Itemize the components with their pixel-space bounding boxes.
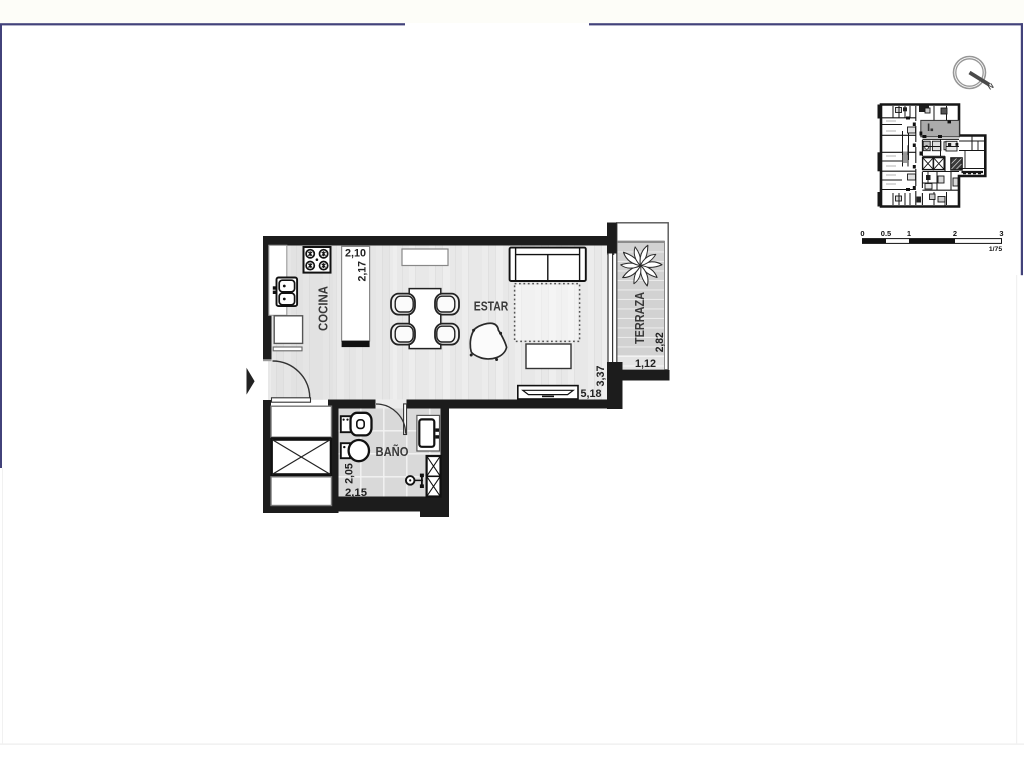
svg-text:BAÑO: BAÑO bbox=[376, 444, 409, 459]
svg-text:1,12: 1,12 bbox=[635, 358, 656, 370]
svg-text:1/75: 1/75 bbox=[989, 246, 1002, 253]
svg-text:2,17: 2,17 bbox=[356, 261, 368, 282]
svg-text:2,15: 2,15 bbox=[345, 487, 367, 499]
svg-text:3: 3 bbox=[999, 229, 1003, 238]
svg-text:5,18: 5,18 bbox=[581, 388, 602, 400]
svg-text:0.5: 0.5 bbox=[881, 229, 891, 238]
svg-text:2,10: 2,10 bbox=[345, 247, 366, 259]
svg-text:COCINA: COCINA bbox=[316, 286, 330, 331]
svg-text:2: 2 bbox=[953, 229, 957, 238]
svg-text:3,37: 3,37 bbox=[595, 366, 607, 387]
svg-text:2,05: 2,05 bbox=[343, 463, 355, 484]
svg-text:2,82: 2,82 bbox=[654, 332, 666, 352]
svg-text:0: 0 bbox=[860, 229, 864, 238]
svg-text:TERRAZA: TERRAZA bbox=[633, 292, 647, 344]
svg-text:1: 1 bbox=[907, 229, 911, 238]
svg-text:ESTAR: ESTAR bbox=[474, 300, 509, 314]
